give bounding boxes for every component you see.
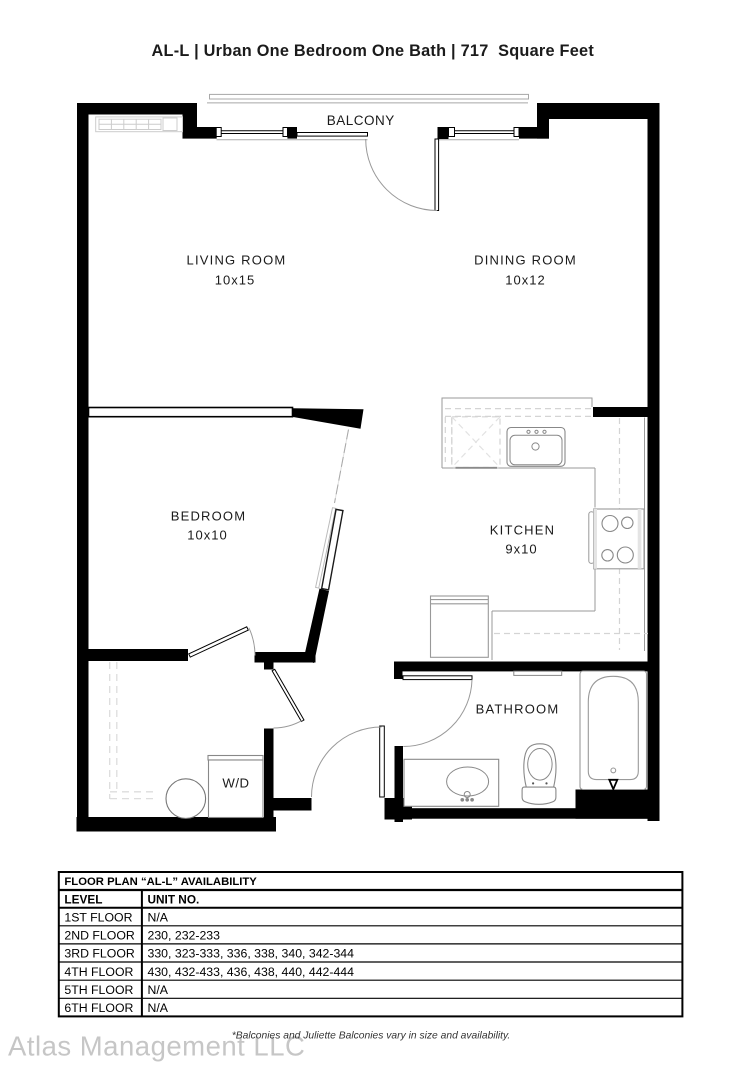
svg-text:1ST FLOOR: 1ST FLOOR: [64, 910, 132, 924]
svg-text:UNIT NO.: UNIT NO.: [148, 892, 200, 906]
svg-text:10x10: 10x10: [187, 528, 227, 543]
svg-text:430, 432-433, 436, 438, 440, 4: 430, 432-433, 436, 438, 440, 442-444: [148, 965, 355, 979]
svg-text:6TH FLOOR: 6TH FLOOR: [64, 1001, 133, 1015]
svg-text:4TH FLOOR: 4TH FLOOR: [64, 965, 133, 979]
svg-text:N/A: N/A: [148, 983, 169, 997]
svg-text:W/D: W/D: [222, 775, 249, 790]
svg-text:BEDROOM: BEDROOM: [171, 509, 247, 524]
svg-text:N/A: N/A: [148, 910, 169, 924]
svg-text:FLOOR PLAN “AL-L” AVAILABILITY: FLOOR PLAN “AL-L” AVAILABILITY: [64, 876, 257, 888]
svg-text:LEVEL: LEVEL: [64, 892, 102, 906]
svg-text:BATHROOM: BATHROOM: [476, 702, 560, 717]
svg-text:2ND FLOOR: 2ND FLOOR: [64, 929, 134, 943]
svg-text:9x10: 9x10: [505, 542, 537, 557]
svg-text:BALCONY: BALCONY: [327, 113, 395, 128]
svg-text:DINING ROOM: DINING ROOM: [474, 253, 577, 268]
svg-text:5TH FLOOR: 5TH FLOOR: [64, 983, 133, 997]
svg-text:KITCHEN: KITCHEN: [490, 523, 555, 538]
svg-text:AL-L | Urban One Bedroom One B: AL-L | Urban One Bedroom One Bath | 717 …: [152, 42, 595, 60]
svg-text:10x15: 10x15: [215, 273, 255, 288]
svg-text:*Balconies and Juliette Balcon: *Balconies and Juliette Balconies vary i…: [232, 1031, 511, 1042]
svg-text:10x12: 10x12: [505, 273, 545, 288]
svg-text:230, 232-233: 230, 232-233: [148, 929, 221, 943]
svg-text:330, 323-333, 336, 338, 340, 3: 330, 323-333, 336, 338, 340, 342-344: [148, 947, 355, 961]
svg-text:3RD FLOOR: 3RD FLOOR: [64, 947, 134, 961]
svg-text:N/A: N/A: [148, 1001, 169, 1015]
svg-text:LIVING ROOM: LIVING ROOM: [187, 253, 287, 268]
